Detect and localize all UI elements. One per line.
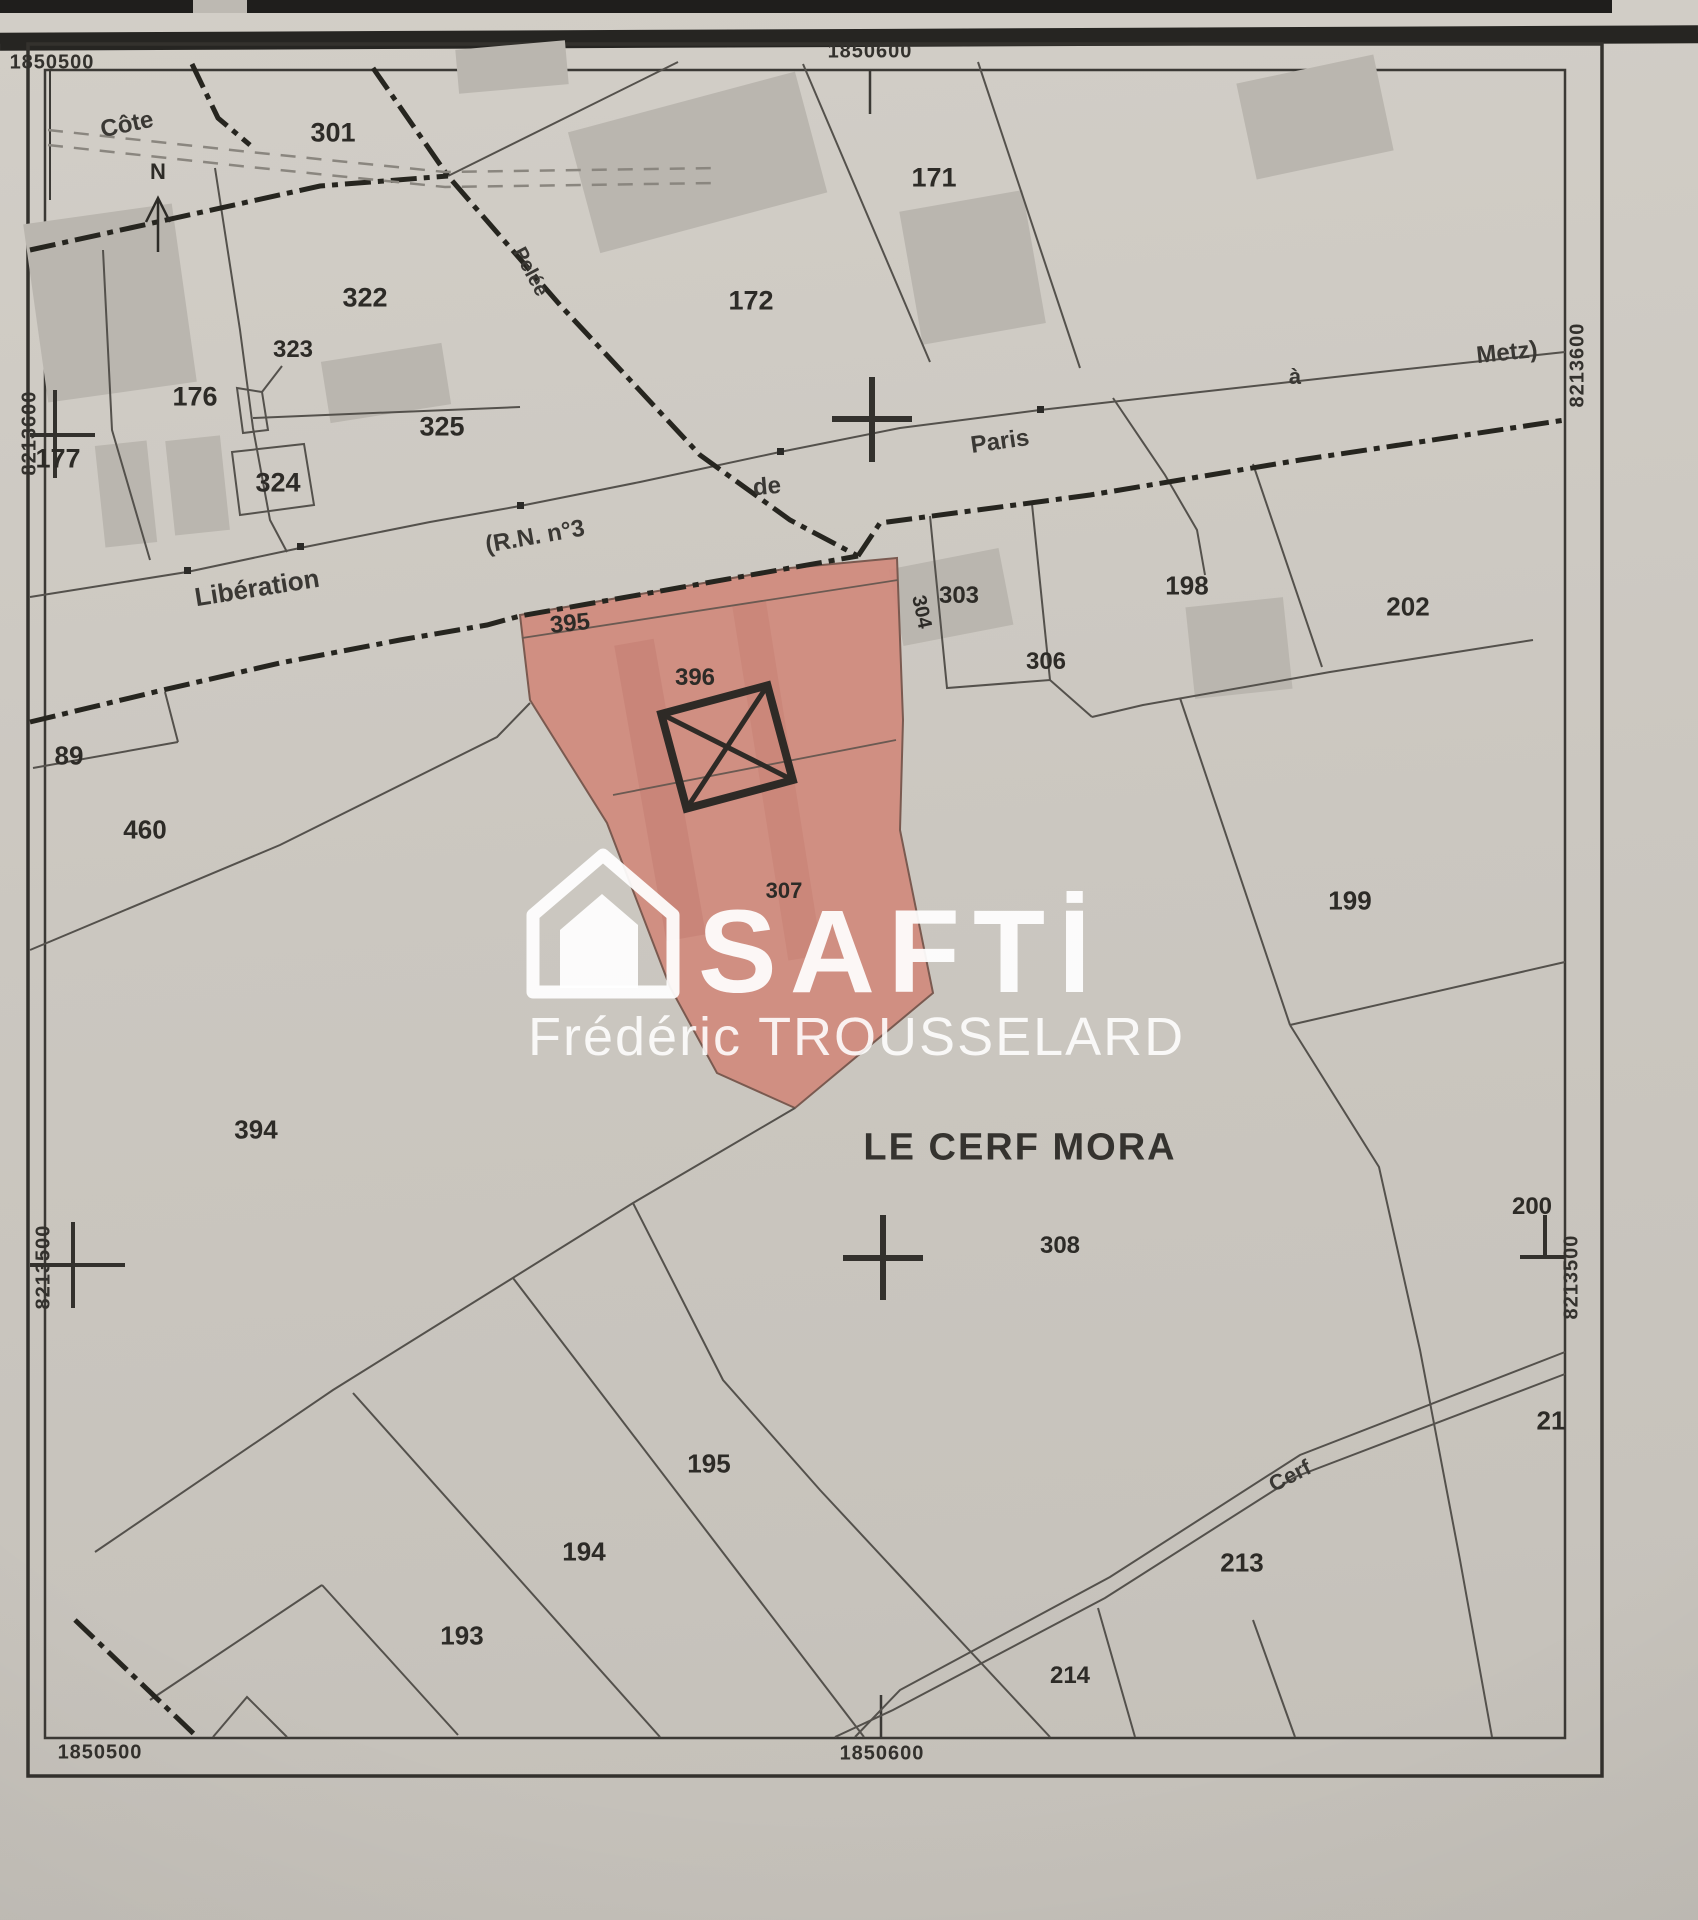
parcel-label-213: 213 bbox=[1220, 1548, 1263, 1579]
parcel-label-325: 325 bbox=[419, 412, 464, 443]
parcel-label-303: 303 bbox=[939, 582, 979, 610]
watermark-agent: Frédéric TROUSSELARD bbox=[528, 1010, 1185, 1064]
parcel-label-301: 301 bbox=[310, 118, 355, 149]
parcel-label-324: 324 bbox=[255, 468, 300, 499]
parcel-label-193: 193 bbox=[440, 1621, 483, 1652]
grid-coordinate-label: 8213600 bbox=[19, 391, 42, 476]
parcel-label-89: 89 bbox=[55, 741, 84, 772]
grid-coordinate-label: 1850500 bbox=[10, 52, 95, 75]
parcel-label-199: 199 bbox=[1328, 886, 1371, 917]
parcel-label-395: 395 bbox=[549, 608, 592, 640]
parcel-label-306: 306 bbox=[1026, 648, 1066, 676]
parcel-label-195: 195 bbox=[687, 1449, 730, 1480]
cerf-road bbox=[835, 1352, 1565, 1737]
survey-points bbox=[184, 406, 1044, 574]
parcel-label-323: 323 bbox=[273, 336, 313, 364]
road-label: de bbox=[752, 472, 782, 502]
grid-coordinate-label: 1850600 bbox=[828, 41, 913, 64]
grid-coordinate-label: 8213500 bbox=[1561, 1235, 1584, 1320]
grid-coordinate-label: 1850500 bbox=[58, 1742, 143, 1765]
parcel-label-177: 177 bbox=[35, 444, 80, 475]
watermark-brand: SAFTİ bbox=[698, 893, 1104, 1011]
parcel-label-194: 194 bbox=[562, 1537, 605, 1568]
parcel-label-214: 214 bbox=[1050, 1662, 1090, 1690]
parcel-label-308: 308 bbox=[1040, 1232, 1080, 1260]
parcel-label-171: 171 bbox=[911, 163, 956, 194]
grid-coordinate-label: 1850600 bbox=[840, 1743, 925, 1766]
parcel-label-322: 322 bbox=[342, 283, 387, 314]
parcel-label-396: 396 bbox=[675, 664, 715, 692]
parcel-label-21: 21 bbox=[1537, 1406, 1566, 1437]
parcel-label-202: 202 bbox=[1386, 592, 1429, 623]
grid-coordinate-label: 8213600 bbox=[1567, 323, 1590, 408]
parcel-label-307: 307 bbox=[766, 878, 803, 904]
parcel-label-200: 200 bbox=[1512, 1193, 1552, 1221]
north-label: N bbox=[150, 159, 166, 185]
road-label: à bbox=[1289, 364, 1301, 390]
parcel-label-394: 394 bbox=[234, 1115, 277, 1146]
parcel-label-176: 176 bbox=[172, 382, 217, 413]
parcel-label-460: 460 bbox=[123, 815, 166, 846]
parcel-label-172: 172 bbox=[728, 286, 773, 317]
parcel-label-198: 198 bbox=[1165, 571, 1208, 602]
place-name: LE CERF MORA bbox=[863, 1127, 1176, 1170]
grid-coordinate-label: 8213500 bbox=[33, 1225, 56, 1310]
